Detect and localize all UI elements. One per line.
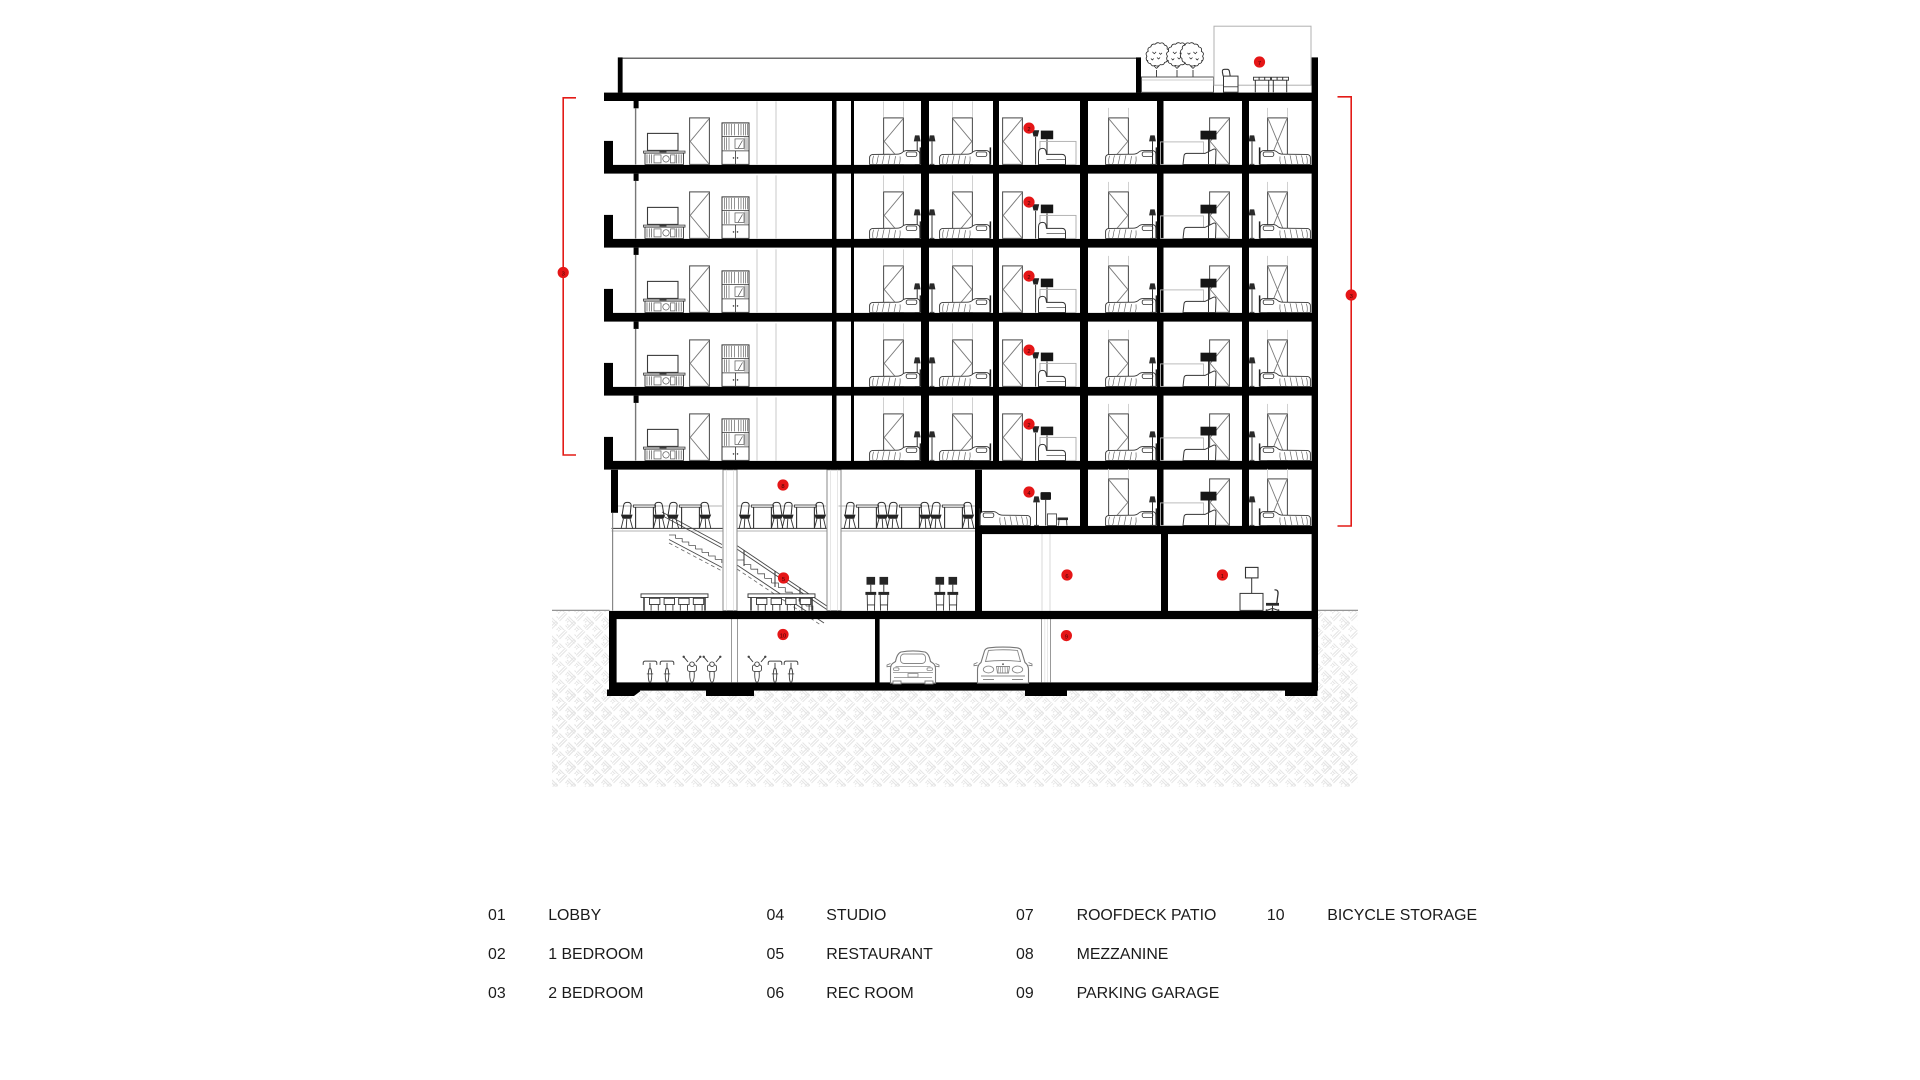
svg-text:BICYCLE STORAGE: BICYCLE STORAGE [1327, 907, 1477, 924]
svg-text:8: 8 [781, 484, 784, 490]
svg-text:09: 09 [1016, 985, 1034, 1002]
svg-text:06: 06 [767, 985, 785, 1002]
svg-text:2 BEDROOM: 2 BEDROOM [548, 985, 643, 1002]
svg-text:1 BEDROOM: 1 BEDROOM [548, 946, 643, 963]
svg-text:02: 02 [488, 946, 506, 963]
svg-text:10: 10 [1267, 907, 1285, 924]
svg-text:03: 03 [488, 985, 506, 1002]
svg-text:9: 9 [1065, 634, 1068, 640]
svg-text:05: 05 [767, 946, 785, 963]
svg-text:STUDIO: STUDIO [826, 907, 886, 924]
svg-text:08: 08 [1016, 946, 1034, 963]
svg-text:MEZZANINE: MEZZANINE [1077, 946, 1169, 963]
svg-text:5: 5 [782, 577, 785, 583]
svg-text:ROOFDECK PATIO: ROOFDECK PATIO [1077, 907, 1217, 924]
svg-text:PARKING GARAGE: PARKING GARAGE [1077, 985, 1220, 1002]
svg-text:LOBBY: LOBBY [548, 907, 601, 924]
svg-text:3: 3 [1350, 294, 1353, 300]
svg-text:1: 1 [1221, 574, 1224, 580]
svg-text:07: 07 [1016, 907, 1034, 924]
svg-text:3: 3 [562, 271, 565, 277]
svg-text:10: 10 [780, 633, 786, 639]
svg-text:7: 7 [1258, 61, 1261, 67]
svg-text:6: 6 [1065, 574, 1068, 580]
svg-text:RESTAURANT: RESTAURANT [826, 946, 933, 963]
svg-text:REC ROOM: REC ROOM [826, 985, 913, 1002]
svg-text:01: 01 [488, 907, 506, 924]
svg-text:04: 04 [767, 907, 785, 924]
